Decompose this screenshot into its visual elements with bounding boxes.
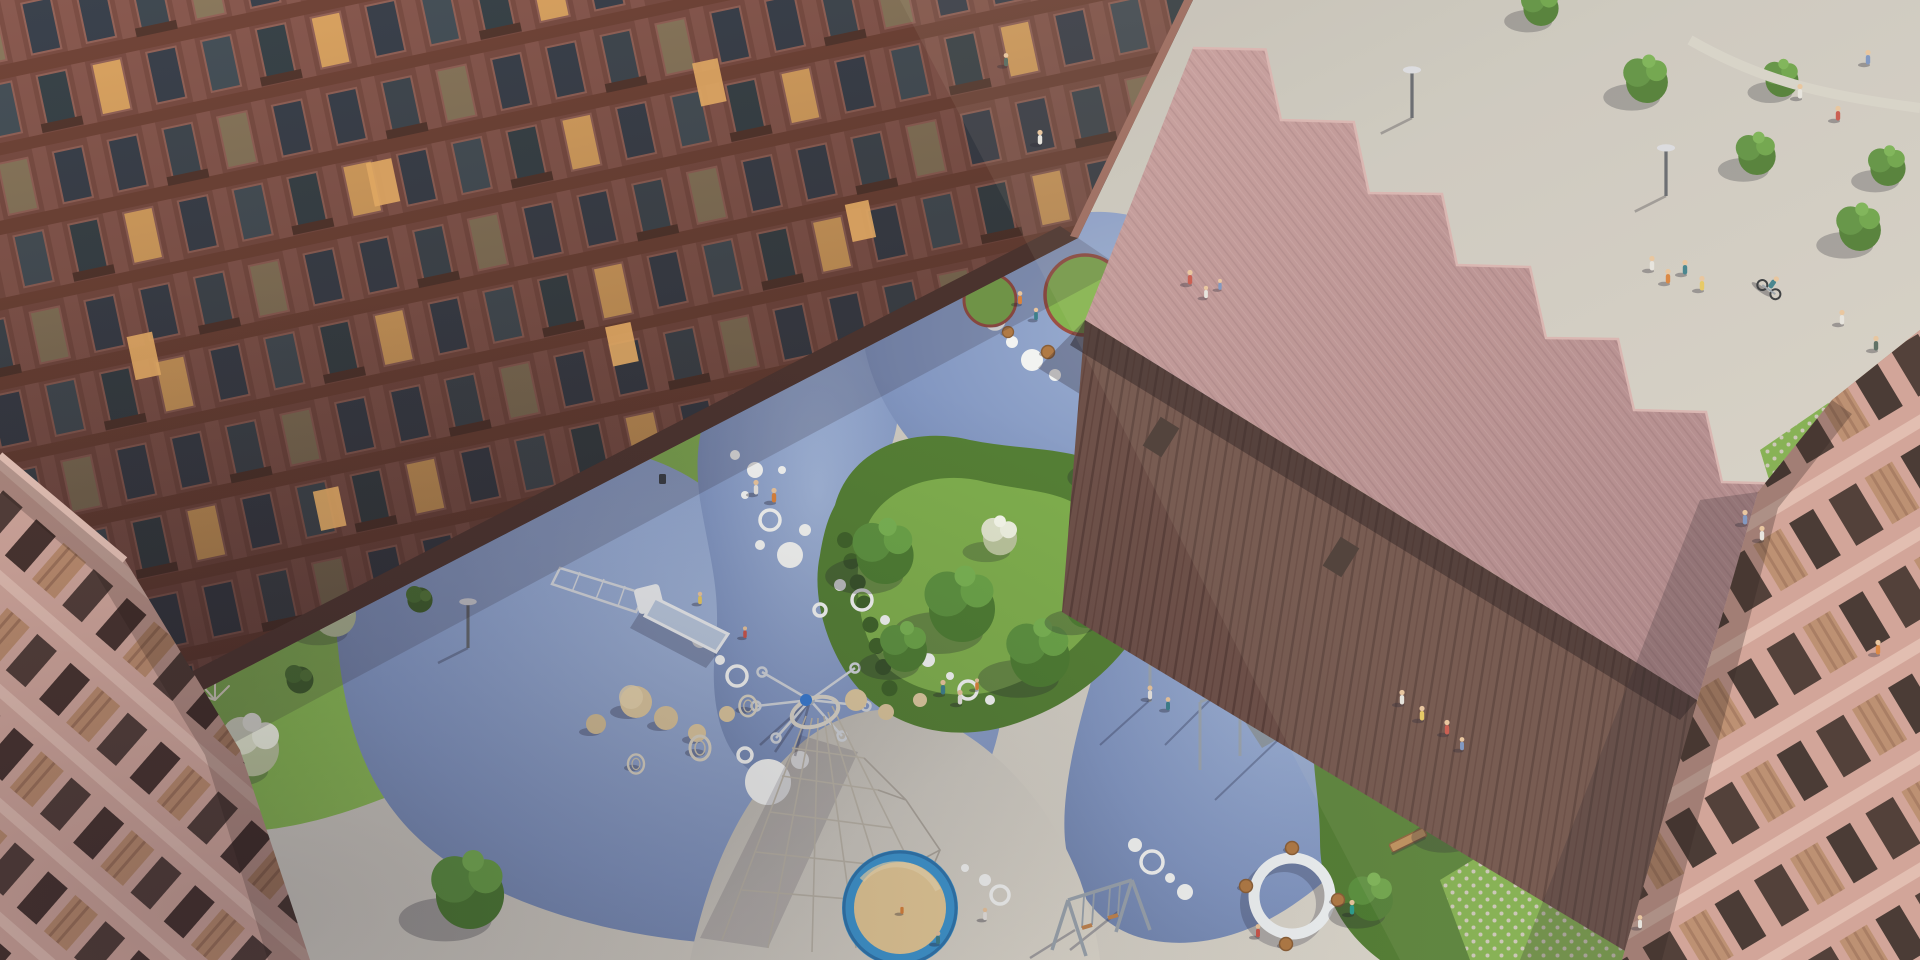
courtyard-aerial-scene: [0, 0, 1920, 960]
rendering-canvas: [0, 0, 1920, 960]
vignette: [0, 0, 1920, 960]
